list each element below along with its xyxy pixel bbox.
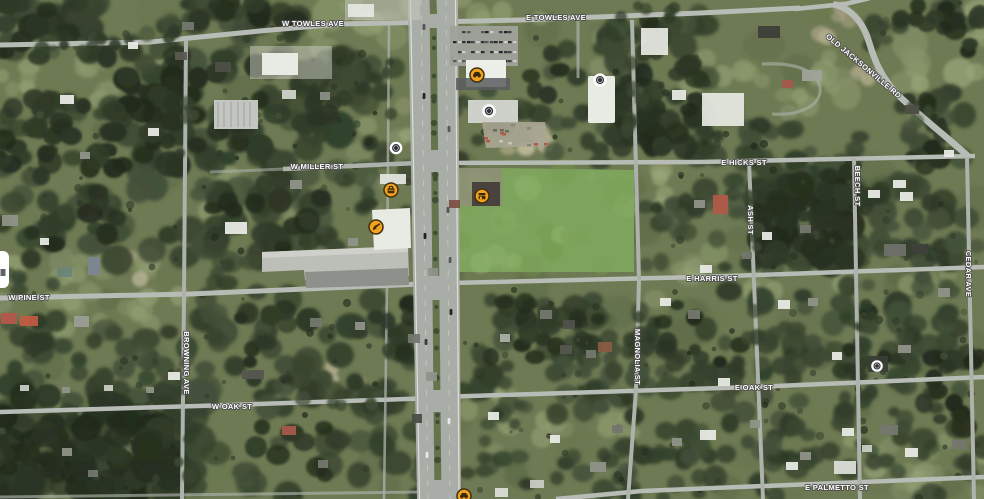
svg-text:BROWNING AVE: BROWNING AVE [182, 331, 191, 395]
svg-text:E PALMETTO ST: E PALMETTO ST [805, 483, 869, 492]
svg-text:E TOWLES AVE: E TOWLES AVE [526, 13, 586, 22]
svg-text:W PINE ST: W PINE ST [8, 293, 50, 302]
svg-text:BEECH ST: BEECH ST [853, 166, 862, 207]
svg-text:E OAK ST: E OAK ST [735, 383, 773, 392]
svg-text:W OAK ST: W OAK ST [212, 402, 252, 411]
svg-text:MAGNOLIA ST: MAGNOLIA ST [633, 329, 642, 385]
svg-text:E HICKS ST: E HICKS ST [721, 158, 767, 167]
svg-text:ASH ST: ASH ST [746, 205, 755, 235]
svg-text:W MILLER ST: W MILLER ST [291, 162, 344, 171]
svg-text:E HARRIS ST: E HARRIS ST [686, 274, 737, 283]
svg-text:CEDAR AVE: CEDAR AVE [964, 251, 973, 298]
svg-text:W TOWLES AVE: W TOWLES AVE [282, 19, 344, 28]
